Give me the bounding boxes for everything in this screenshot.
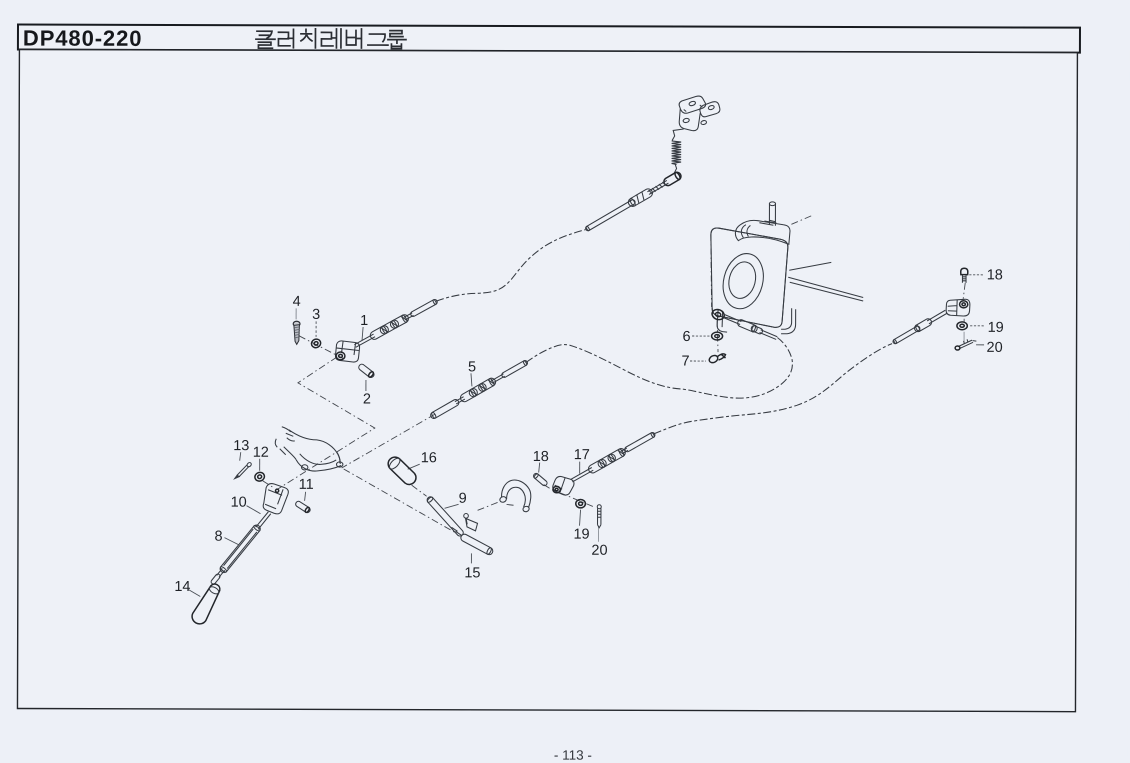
svg-text:18: 18 xyxy=(987,267,1003,283)
svg-text:9: 9 xyxy=(459,491,467,507)
svg-text:19: 19 xyxy=(988,320,1004,336)
svg-text:3: 3 xyxy=(312,307,320,323)
svg-text:6: 6 xyxy=(683,329,691,345)
svg-text:DP480-220: DP480-220 xyxy=(23,26,142,51)
svg-text:11: 11 xyxy=(299,477,314,493)
svg-text:20: 20 xyxy=(987,340,1003,356)
svg-text:19: 19 xyxy=(573,527,589,543)
svg-text:4: 4 xyxy=(293,294,301,310)
svg-text:18: 18 xyxy=(533,449,549,465)
svg-text:12: 12 xyxy=(253,445,269,461)
svg-text:5: 5 xyxy=(468,359,476,375)
svg-text:13: 13 xyxy=(233,438,249,454)
svg-text:2: 2 xyxy=(363,392,371,408)
svg-text:8: 8 xyxy=(214,529,222,545)
svg-text:14: 14 xyxy=(174,579,190,595)
svg-text:15: 15 xyxy=(464,565,480,581)
svg-text:10: 10 xyxy=(231,495,247,511)
svg-text:1: 1 xyxy=(360,313,368,329)
svg-text:20: 20 xyxy=(591,543,607,559)
svg-text:7: 7 xyxy=(681,353,689,369)
svg-text:- 113 -: - 113 - xyxy=(554,748,592,763)
svg-text:17: 17 xyxy=(574,447,590,463)
svg-text:16: 16 xyxy=(421,450,437,466)
